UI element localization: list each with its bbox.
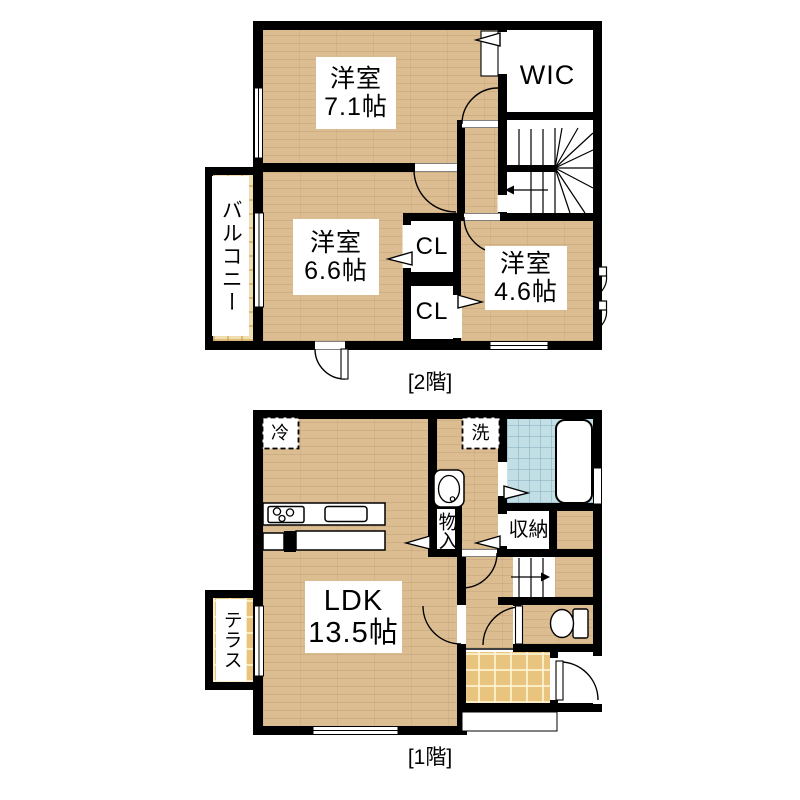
hall-1f <box>465 557 513 648</box>
caption-1f: [1階] <box>385 741 475 767</box>
room-name: WIC <box>520 60 575 90</box>
room-size: 13.5帖 <box>308 617 398 649</box>
stairwell-2f <box>498 120 593 213</box>
room-label-balcony: バルコニー <box>212 176 249 336</box>
bathroom <box>507 419 593 503</box>
floor-plan-canvas: 洋室 7.1帖 洋室 6.6帖 洋室 4.6帖 WIC CL CL バルコニー … <box>0 0 800 800</box>
room-ldk <box>263 419 457 727</box>
room-name: 物入 <box>435 512 456 550</box>
stair-landing-1f <box>555 557 593 597</box>
room-name: 洋室 <box>330 65 382 93</box>
caption-text: [1階] <box>408 746 452 769</box>
room-label-ldk: LDK 13.5帖 <box>305 581 402 653</box>
room-label-cl2: CL <box>411 296 453 328</box>
room-label-bedroom46: 洋室 4.6帖 <box>485 246 567 310</box>
entrance-genkan <box>462 652 550 703</box>
casement-window-icons <box>599 267 607 328</box>
room-label-monoire: 物入 <box>435 508 457 554</box>
toilet-room <box>521 605 593 644</box>
room-label-cl1: CL <box>411 231 453 263</box>
room-name: テラス <box>220 610 241 670</box>
label-laundry: 洗 <box>463 418 499 448</box>
caption-2f: [2階] <box>385 366 475 392</box>
landing-strip <box>557 511 593 549</box>
room-size: 6.6帖 <box>304 257 368 285</box>
room-name: バルコニー <box>219 199 243 314</box>
room-name: LDK <box>324 585 383 617</box>
label-fridge: 冷 <box>263 418 298 448</box>
room-label-terrace: テラス <box>216 599 246 681</box>
porch <box>462 712 557 731</box>
room-size: 7.1帖 <box>324 93 388 121</box>
room-label-bedroom71: 洋室 7.1帖 <box>316 57 396 129</box>
caption-text: [2階] <box>408 371 452 394</box>
room-name: 洋室 <box>310 229 362 257</box>
entrance-door <box>556 661 563 700</box>
room-name: 洋室 <box>500 250 552 278</box>
label-text: 冷 <box>271 423 290 443</box>
room-size: 4.6帖 <box>494 278 558 306</box>
room-name: CL <box>416 299 449 326</box>
hall-2f <box>457 128 498 215</box>
label-text: 洗 <box>472 423 491 443</box>
room-label-bedroom66: 洋室 6.6帖 <box>293 219 379 295</box>
room-name: 収納 <box>509 519 549 541</box>
room-name: CL <box>416 234 449 261</box>
room-label-wic: WIC <box>505 55 590 95</box>
room-label-shuno: 収納 <box>506 517 551 543</box>
